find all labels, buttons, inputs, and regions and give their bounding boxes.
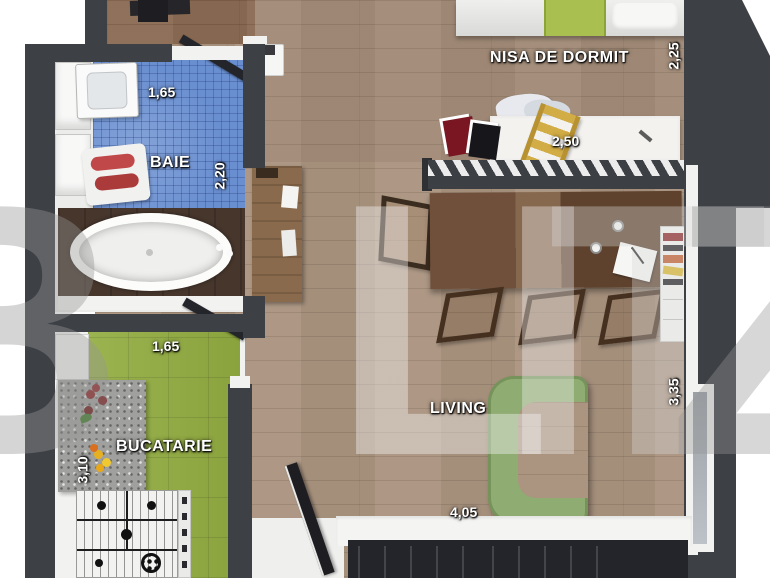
burner bbox=[147, 501, 156, 510]
pen bbox=[631, 247, 644, 264]
kitchen-counter-white bbox=[55, 334, 89, 380]
cup bbox=[590, 242, 602, 254]
cup bbox=[612, 220, 624, 232]
room-label-bathroom: BAIE bbox=[150, 154, 190, 172]
sink-basin bbox=[86, 71, 127, 109]
book bbox=[663, 245, 683, 251]
burner bbox=[95, 559, 103, 567]
floor-plan: B L I T Z NISA DE DORMIT 2,25 2,50 1,65 … bbox=[0, 0, 770, 578]
sofa-seat-opening bbox=[518, 402, 588, 498]
grill-burner bbox=[141, 553, 161, 573]
chair bbox=[378, 195, 433, 270]
gas-stove bbox=[76, 490, 178, 578]
decor-item bbox=[281, 185, 299, 208]
window-pane bbox=[358, 546, 476, 578]
fruit bbox=[90, 444, 98, 452]
fruit bbox=[92, 384, 100, 392]
chair bbox=[518, 289, 586, 345]
bathtub-drain bbox=[146, 249, 153, 256]
book bbox=[663, 233, 683, 241]
dim-kitchen-depth: 3,10 bbox=[75, 456, 91, 483]
decor-item bbox=[256, 168, 278, 178]
edge-detail bbox=[182, 513, 187, 520]
wall-kitchen-living bbox=[228, 384, 252, 578]
wall-cap bbox=[230, 376, 250, 388]
dim-living-depth: 3,35 bbox=[666, 378, 682, 405]
chair bbox=[598, 289, 666, 345]
shelf-divider bbox=[663, 299, 683, 300]
dim-living-width: 4,05 bbox=[450, 504, 477, 520]
room-label-sleeping-nook: NISA DE DORMIT bbox=[490, 49, 629, 67]
bathroom-sink bbox=[75, 62, 139, 119]
towel-roll bbox=[94, 173, 139, 192]
window-pane bbox=[492, 546, 622, 578]
decor-item bbox=[281, 230, 297, 257]
bed-blanket bbox=[544, 0, 606, 36]
shelf-divider bbox=[663, 319, 683, 320]
bed-pillow bbox=[612, 3, 678, 31]
photo-frame bbox=[466, 119, 498, 157]
edge-detail bbox=[182, 561, 187, 568]
bath-door-threshold bbox=[172, 46, 243, 60]
soap-dish bbox=[226, 250, 233, 257]
bath-mat bbox=[81, 143, 151, 206]
dresser-handle bbox=[638, 130, 652, 143]
towel-roll bbox=[90, 153, 135, 172]
wall-entry-left bbox=[85, 0, 107, 50]
entry-door-leaf bbox=[138, 0, 168, 22]
dim-bath-width: 1,65 bbox=[148, 84, 175, 100]
dim-nook-depth: 2,25 bbox=[666, 42, 682, 69]
sofa bbox=[488, 376, 588, 524]
stove-grid-line bbox=[126, 491, 128, 549]
counter-side-edge bbox=[178, 490, 191, 578]
room-label-living: LIVING bbox=[430, 400, 486, 418]
edge-detail bbox=[182, 545, 187, 552]
sideboard bbox=[252, 166, 302, 302]
wall-bath-living bbox=[243, 40, 265, 168]
bathtub-ledge bbox=[58, 296, 245, 310]
edge-detail bbox=[182, 497, 187, 504]
dresser bbox=[490, 116, 680, 164]
stove-grid-line bbox=[77, 549, 177, 551]
wall-outer-left bbox=[25, 44, 55, 578]
chair bbox=[436, 287, 504, 343]
book bbox=[663, 279, 683, 285]
wall-kitchen-top bbox=[55, 314, 247, 332]
bookshelf bbox=[660, 226, 686, 342]
bottom-window-frame bbox=[348, 540, 688, 578]
dim-bath-depth: 2,20 bbox=[212, 162, 228, 189]
room-label-kitchen: BUCATARIE bbox=[116, 438, 212, 456]
soap-dish bbox=[216, 244, 223, 251]
book bbox=[663, 255, 683, 263]
nook-railing-base bbox=[428, 176, 684, 189]
fruit bbox=[98, 396, 107, 405]
edge-detail bbox=[182, 529, 187, 536]
burner bbox=[121, 529, 132, 540]
dim-kitchen-door: 1,65 bbox=[152, 338, 179, 354]
bed bbox=[456, 0, 688, 36]
burner bbox=[97, 501, 106, 510]
fruit bbox=[96, 464, 104, 472]
dim-nook-width: 2,50 bbox=[552, 133, 579, 149]
book bbox=[663, 266, 684, 277]
right-window-glass bbox=[693, 392, 707, 544]
wall-cap bbox=[243, 36, 267, 44]
